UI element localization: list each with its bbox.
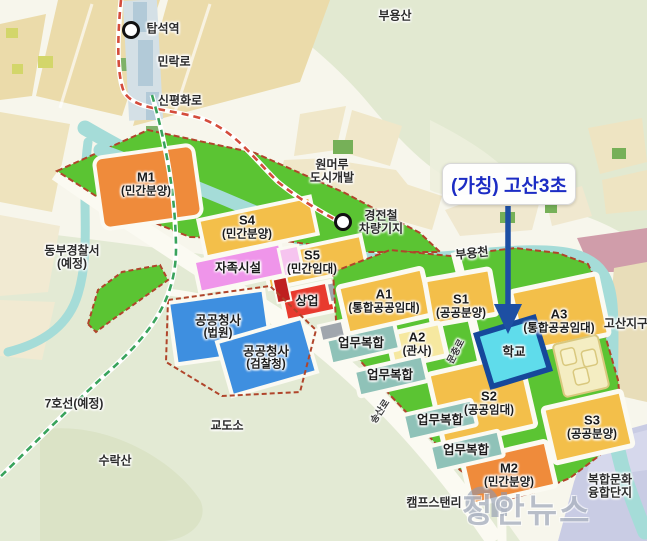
zone-type: (통합공공임대)	[523, 322, 594, 335]
label-suraksan: 수락산	[98, 454, 131, 467]
zone-type: (통합공공임대)	[348, 302, 419, 315]
city-parcel	[38, 56, 53, 68]
zone-code: S3	[567, 413, 617, 428]
school-callout-box: (가칭) 고산3초	[442, 163, 576, 205]
label-lrt-depot-line2: 차량기지	[359, 223, 403, 236]
zone-label-s1: S1 (공공분양)	[436, 292, 486, 319]
zone-label-school: 학교	[502, 345, 525, 359]
watermark-text: 정안뉴스	[462, 484, 591, 532]
label-wonmeoru-line2: 도시개발	[310, 172, 354, 185]
school-callout-text: (가칭) 고산3초	[451, 171, 567, 198]
zone-code: A3	[523, 307, 594, 322]
zone-label-jajok: 자족시설	[215, 261, 261, 275]
label-gosan-district: 고산지구	[604, 317, 647, 330]
zone-type: (민간임대)	[287, 263, 337, 276]
zone-label-biz-1: 업무복합	[338, 336, 384, 350]
zone-label-biz-2: 업무복합	[367, 368, 413, 382]
label-buyongsan: 부용산	[378, 9, 411, 22]
zone-code: S1	[436, 292, 486, 307]
zone-code: M2	[484, 461, 534, 476]
label-line7: 7호선(예정)	[45, 397, 104, 410]
zone-label-sangeop: 상업	[295, 294, 318, 308]
label-tapseok-station: 탑석역	[146, 22, 179, 35]
zone-type: (공공임대)	[464, 404, 514, 417]
parking-cell	[581, 349, 598, 368]
city-parcel	[6, 28, 18, 38]
zone-label-culture: 복합문화 융합단지	[588, 474, 632, 501]
culture-line2: 융합단지	[588, 487, 632, 500]
zone-code: S4	[222, 213, 272, 228]
building	[138, 40, 153, 86]
zone-type: (검찰청)	[243, 359, 289, 372]
city-park	[545, 204, 557, 213]
tapseok-station-marker	[124, 23, 139, 38]
lrt-depot-marker	[336, 215, 351, 230]
zone-type: (민간분양)	[222, 228, 272, 241]
parking-cell	[560, 347, 577, 366]
zone-code: A2	[403, 330, 432, 345]
zone-code: M1	[121, 170, 171, 185]
zone-label-a1: A1 (통합공공임대)	[348, 287, 419, 314]
zone-label-s5: S5 (민간임대)	[287, 248, 337, 275]
zone-name: 공공청사	[243, 345, 289, 359]
zone-code: S5	[287, 248, 337, 263]
zone-code: A1	[348, 287, 419, 302]
zone-label-biz-3: 업무복합	[417, 413, 463, 427]
zone-type: (공공분양)	[567, 428, 617, 441]
map-image: 부용산 탑석역 민락로 신평화로 원머루 도시개발 경전철 차량기지 부용천 동…	[0, 0, 647, 541]
parking-cell	[573, 367, 590, 386]
label-dongbu-police: 동부경찰서 (예정)	[44, 245, 99, 272]
zone-type: (공공분양)	[436, 307, 486, 320]
label-dongbu-line2: (예정)	[44, 258, 99, 271]
zone-type: (법원)	[195, 328, 241, 341]
label-wonmeoru: 원머루 도시개발	[310, 159, 354, 186]
zone-label-s2: S2 (공공임대)	[464, 389, 514, 416]
zone-label-a2: A2 (관사)	[403, 330, 432, 357]
zone-label-s3: S3 (공공분양)	[567, 413, 617, 440]
zone-label-biz-4: 업무복합	[443, 443, 489, 457]
zone-name: 공공청사	[195, 314, 241, 328]
wonmeoru-park	[333, 140, 353, 154]
zone-label-prosecution: 공공청사 (검찰청)	[243, 345, 289, 372]
zone-type: (민간분양)	[121, 185, 171, 198]
zone-label-m1: M1 (민간분양)	[121, 170, 171, 197]
zone-label-a3: A3 (통합공공임대)	[523, 307, 594, 334]
label-lrt-depot: 경전철 차량기지	[359, 210, 403, 237]
label-camp-stanley: 캠프스탠리	[406, 496, 461, 509]
zone-label-s4: S4 (민간분양)	[222, 213, 272, 240]
label-minrak-ro: 민락로	[157, 55, 190, 68]
city-parcel	[12, 64, 23, 74]
zone-label-court: 공공청사 (법원)	[195, 314, 241, 341]
label-sinpyeonghwa-ro: 신평화로	[158, 94, 202, 107]
city-park	[612, 148, 626, 159]
label-prison: 교도소	[210, 419, 243, 432]
zone-code: S2	[464, 389, 514, 404]
zone-type: (관사)	[403, 345, 432, 358]
watermark: 정안뉴스	[462, 484, 591, 532]
